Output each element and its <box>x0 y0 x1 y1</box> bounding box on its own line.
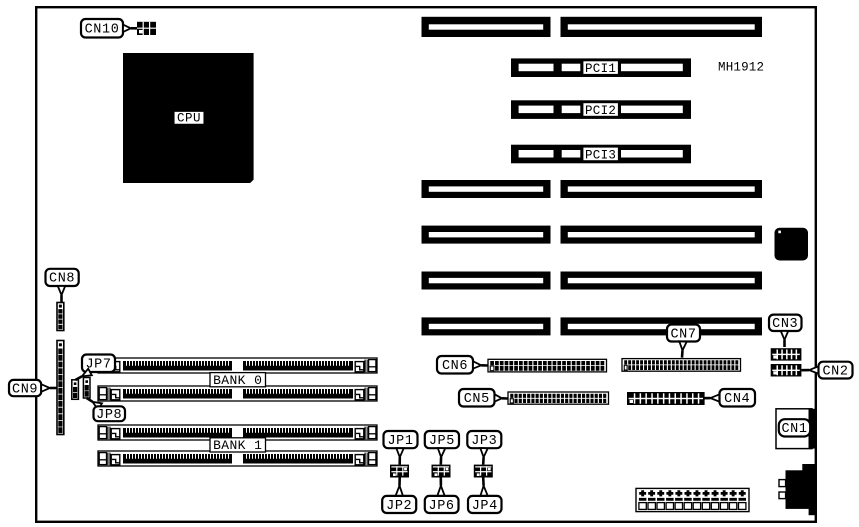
svg-text:JP6: JP6 <box>429 499 455 514</box>
svg-text:CN2: CN2 <box>822 364 848 379</box>
svg-text:CPU: CPU <box>177 112 201 126</box>
svg-text:CN3: CN3 <box>772 317 798 332</box>
svg-text:CN5: CN5 <box>464 392 490 407</box>
svg-text:CN8: CN8 <box>49 272 75 287</box>
svg-text:CN9: CN9 <box>12 382 38 397</box>
svg-text:PCI3: PCI3 <box>585 148 616 162</box>
svg-text:JP1: JP1 <box>387 434 413 449</box>
svg-text:JP3: JP3 <box>471 434 497 449</box>
svg-text:JP8: JP8 <box>96 408 122 423</box>
svg-text:MH1912: MH1912 <box>718 60 764 74</box>
svg-text:CN10: CN10 <box>85 23 120 38</box>
svg-text:CN7: CN7 <box>670 327 696 342</box>
svg-text:JP4: JP4 <box>472 499 498 514</box>
svg-text:JP5: JP5 <box>429 434 455 449</box>
svg-text:JP2: JP2 <box>386 499 412 514</box>
svg-text:PCI2: PCI2 <box>585 104 616 118</box>
svg-text:CN6: CN6 <box>442 359 468 374</box>
svg-text:CN1: CN1 <box>781 422 807 437</box>
svg-text:CN4: CN4 <box>724 392 750 407</box>
svg-text:PCI1: PCI1 <box>585 62 616 76</box>
svg-text:BANK 0: BANK 0 <box>213 373 262 388</box>
svg-text:BANK 1: BANK 1 <box>213 438 262 453</box>
